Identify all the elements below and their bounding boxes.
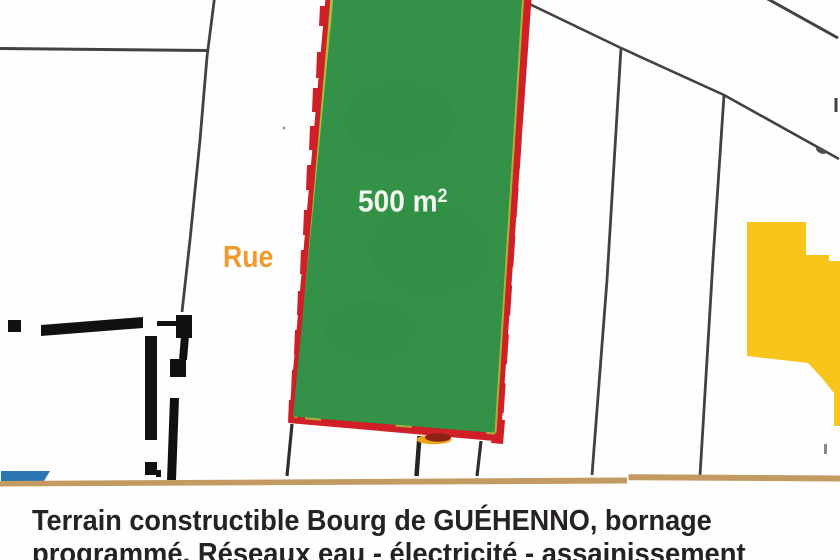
svg-text:500 m2: 500 m2 bbox=[358, 184, 448, 218]
svg-text:Rue: Rue bbox=[223, 241, 273, 275]
